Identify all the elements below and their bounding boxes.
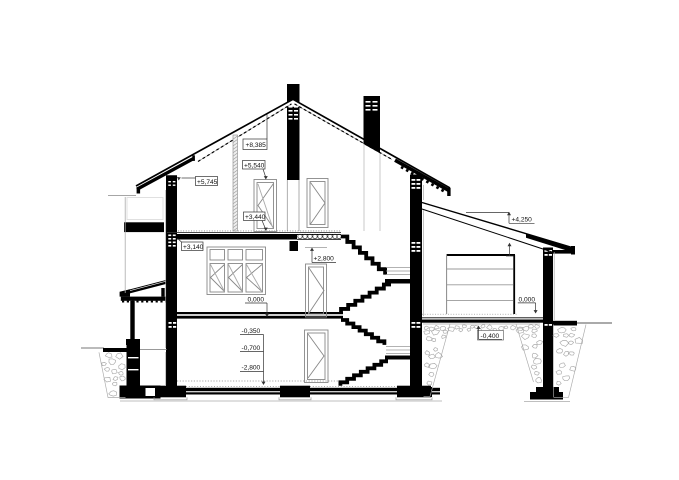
svg-text:0,000: 0,000 bbox=[519, 297, 536, 304]
svg-text:-0,400: -0,400 bbox=[481, 333, 500, 340]
svg-text:+3,140: +3,140 bbox=[183, 244, 204, 251]
svg-text:-2,800: -2,800 bbox=[242, 365, 261, 372]
svg-text:+4,250: +4,250 bbox=[512, 217, 533, 224]
svg-text:+5,540: +5,540 bbox=[244, 163, 265, 170]
svg-text:-0,700: -0,700 bbox=[242, 345, 261, 352]
svg-text:0,000: 0,000 bbox=[248, 297, 265, 304]
svg-text:+8,385: +8,385 bbox=[246, 142, 267, 149]
svg-text:-0,350: -0,350 bbox=[242, 328, 261, 335]
svg-text:+5,745: +5,745 bbox=[197, 179, 218, 186]
svg-text:+2,800: +2,800 bbox=[314, 256, 335, 263]
svg-text:+3,440: +3,440 bbox=[245, 214, 266, 221]
